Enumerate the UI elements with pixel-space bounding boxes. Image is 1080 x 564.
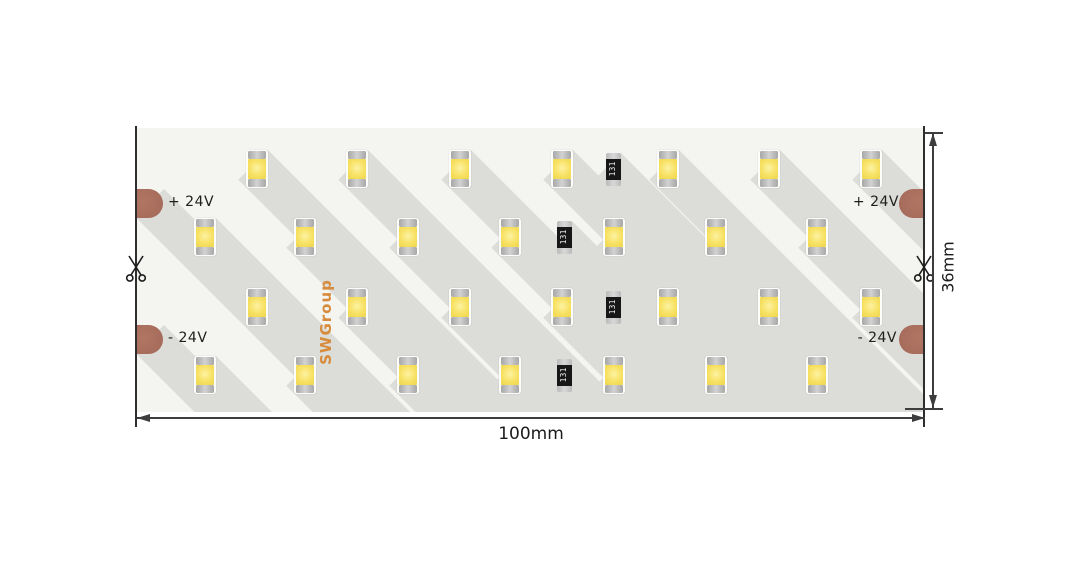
led-electrode-top [451,151,469,159]
led-chip [294,356,316,394]
led-electrode-bottom [605,247,623,255]
led-phosphor-die [348,159,366,179]
led-electrode-top [399,357,417,365]
led-electrode-top [553,151,571,159]
led-electrode-bottom [553,317,571,325]
led-electrode-top [707,219,725,227]
led-electrode-bottom [760,317,778,325]
resistor-chip: 131 [606,153,621,186]
led-electrode-bottom [399,385,417,393]
resistor-body: 131 [606,297,621,318]
resistor-chip: 131 [606,291,621,324]
led-electrode-bottom [659,317,677,325]
led-electrode-bottom [248,179,266,187]
led-electrode-bottom [659,179,677,187]
led-chip [449,150,471,188]
led-electrode-bottom [348,179,366,187]
solder-pad-negative-right [899,325,925,354]
led-electrode-bottom [707,247,725,255]
led-phosphor-die [659,297,677,317]
led-chip [246,150,268,188]
width-dimension-arrow-left [137,414,150,422]
led-electrode-bottom [501,247,519,255]
led-phosphor-die [808,227,826,247]
resistor-value: 131 [560,367,568,382]
led-chip [449,288,471,326]
led-electrode-top [808,357,826,365]
resistor-chip: 131 [557,359,572,392]
led-electrode-bottom [553,179,571,187]
width-dimension-label: 100mm [498,424,564,444]
led-phosphor-die [862,297,880,317]
led-chip [603,218,625,256]
led-phosphor-die [605,365,623,385]
led-electrode-bottom [808,385,826,393]
scissors-icon-left [125,255,147,283]
height-dimension-arrow-top [929,133,937,146]
led-electrode-top [501,357,519,365]
led-chip [294,218,316,256]
led-chip [705,218,727,256]
resistor-body: 131 [557,365,572,386]
led-phosphor-die [451,297,469,317]
led-phosphor-die [399,365,417,385]
led-chip [806,218,828,256]
led-phosphor-die [501,365,519,385]
led-chip [397,356,419,394]
resistor-chip: 131 [557,221,572,254]
led-chip [499,218,521,256]
led-phosphor-die [605,227,623,247]
led-electrode-top [605,219,623,227]
led-chip [346,150,368,188]
led-chip [397,218,419,256]
voltage-label-positive-left: + 24V [168,194,214,210]
led-chip [551,288,573,326]
led-chip [603,356,625,394]
led-phosphor-die [760,159,778,179]
led-strip-body: + 24V - 24V + 24V - 24V SWGroup 13113113… [137,128,925,412]
led-phosphor-die [553,159,571,179]
led-chip [758,150,780,188]
led-chip [194,218,216,256]
led-electrode-top [501,219,519,227]
resistor-body: 131 [606,159,621,180]
resistor-value: 131 [609,161,617,176]
led-electrode-top [808,219,826,227]
led-electrode-top [348,289,366,297]
led-electrode-top [196,357,214,365]
led-electrode-top [451,289,469,297]
led-electrode-top [248,151,266,159]
led-electrode-bottom [862,317,880,325]
led-phosphor-die [296,365,314,385]
led-electrode-bottom [605,385,623,393]
led-electrode-top [605,357,623,365]
led-electrode-bottom [707,385,725,393]
led-chip [705,356,727,394]
led-electrode-bottom [451,179,469,187]
width-dimension-line [137,417,925,419]
width-dimension-arrow-right [912,414,925,422]
led-electrode-top [862,289,880,297]
led-electrode-bottom [248,317,266,325]
led-chip [806,356,828,394]
led-electrode-top [553,289,571,297]
led-electrode-bottom [451,317,469,325]
led-strip-technical-drawing: + 24V - 24V + 24V - 24V SWGroup 13113113… [0,0,1080,564]
led-electrode-top [659,151,677,159]
led-phosphor-die [451,159,469,179]
height-dimension-arrow-bottom [929,395,937,408]
led-chip [860,150,882,188]
led-electrode-top [196,219,214,227]
led-chip [551,150,573,188]
led-chip [860,288,882,326]
led-electrode-top [760,289,778,297]
led-phosphor-die [196,365,214,385]
led-chip [657,150,679,188]
led-electrode-top [296,357,314,365]
height-dimension-label: 36mm [939,241,958,293]
led-chip [758,288,780,326]
led-phosphor-die [659,159,677,179]
led-phosphor-die [760,297,778,317]
led-phosphor-die [707,227,725,247]
led-phosphor-die [501,227,519,247]
led-chip [346,288,368,326]
led-phosphor-die [862,159,880,179]
led-electrode-bottom [501,385,519,393]
led-electrode-top [348,151,366,159]
led-electrode-top [707,357,725,365]
led-chip [657,288,679,326]
led-phosphor-die [553,297,571,317]
led-phosphor-die [248,297,266,317]
brand-logo: SWGroup [317,279,335,365]
led-electrode-bottom [399,247,417,255]
led-electrode-bottom [760,179,778,187]
led-electrode-bottom [296,385,314,393]
led-phosphor-die [707,365,725,385]
led-phosphor-die [399,227,417,247]
led-phosphor-die [296,227,314,247]
led-electrode-top [248,289,266,297]
voltage-label-negative-left: - 24V [168,330,207,346]
resistor-value: 131 [609,299,617,314]
led-phosphor-die [348,297,366,317]
resistor-body: 131 [557,227,572,248]
led-electrode-top [760,151,778,159]
led-phosphor-die [248,159,266,179]
led-electrode-top [659,289,677,297]
height-dimension-tick-bottom [905,408,943,410]
led-electrode-bottom [296,247,314,255]
led-electrode-top [296,219,314,227]
led-chip [499,356,521,394]
led-phosphor-die [808,365,826,385]
led-electrode-bottom [808,247,826,255]
led-electrode-bottom [196,385,214,393]
voltage-label-negative-right: - 24V [858,330,897,346]
led-electrode-bottom [348,317,366,325]
voltage-label-positive-right: + 24V [853,194,899,210]
led-chip [246,288,268,326]
led-electrode-top [862,151,880,159]
led-electrode-bottom [862,179,880,187]
height-dimension-line [932,133,934,408]
resistor-value: 131 [560,229,568,244]
led-phosphor-die [196,227,214,247]
solder-pad-positive-right [899,189,925,218]
led-chip [194,356,216,394]
led-electrode-top [399,219,417,227]
led-electrode-bottom [196,247,214,255]
